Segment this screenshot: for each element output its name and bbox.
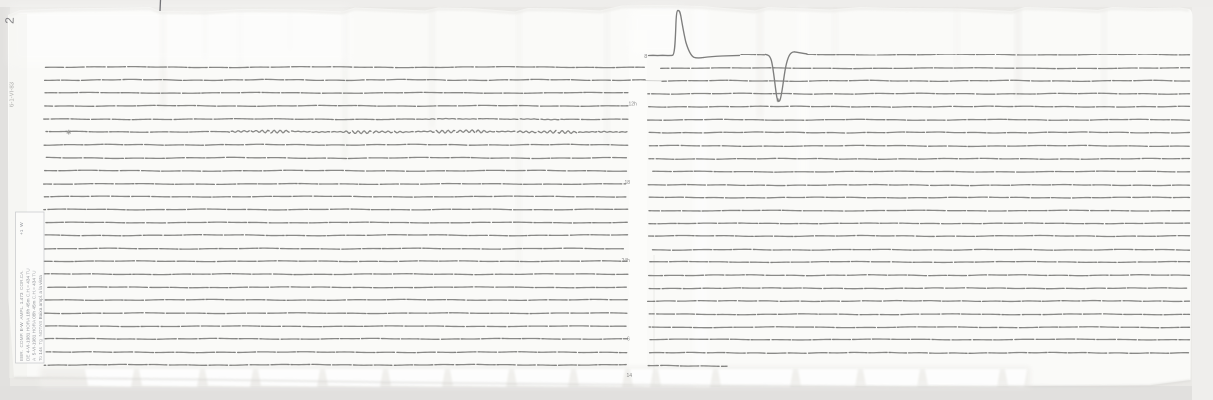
svg-text:To 14s Tg NOTAS Baixa ampl.: To 14s Tg NOTAS Baixa ampl. a la vista [38,275,43,361]
svg-text:EBR. COMP. E-W AMPL. 1.473: EBR. COMP. E-W AMPL. 1.473 COR.CA. [19,270,24,361]
svg-text:✱: ✱ [66,129,72,137]
svg-text:6-1-VI-83: 6-1-VI-83 [10,81,16,107]
svg-text:14: 14 [627,373,633,379]
svg-text:12h: 12h [629,101,638,107]
svg-text:18: 18 [625,180,631,186]
svg-text:6: 6 [627,337,630,343]
svg-text:2: 2 [3,17,17,24]
svg-text:A 5-VI-1981 HORA 08h 45m C.H.: A 5-VI-1981 HORA 08h 45m C.H.= 434 TU [32,270,37,361]
svg-text:24h: 24h [622,258,631,264]
svg-text:8: 8 [644,54,647,60]
svg-text:+1 W: +1 W [19,222,25,235]
svg-text:DE 4-VI-1981 HORA 18h 45m C.H.: DE 4-VI-1981 HORA 18h 45m C.H.= 434 TU [25,268,30,361]
